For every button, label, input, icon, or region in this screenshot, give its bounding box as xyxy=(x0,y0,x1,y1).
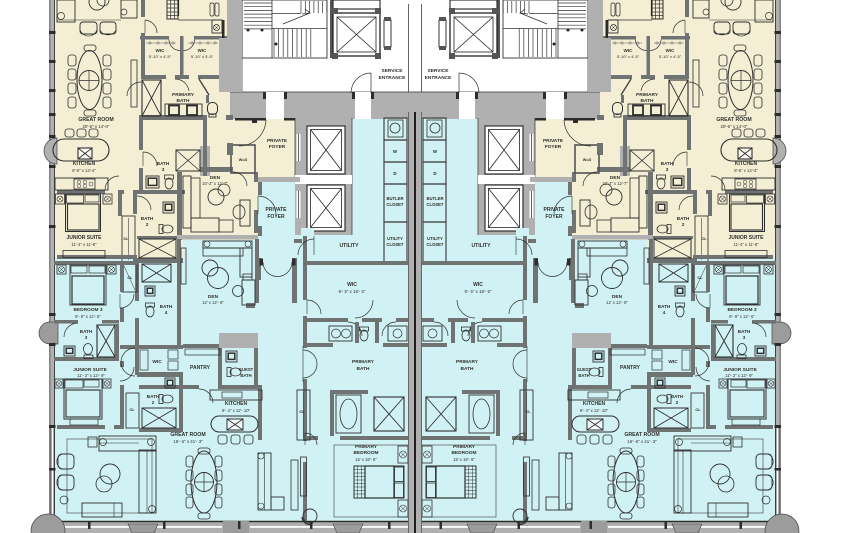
svg-text:UTILITY: UTILITY xyxy=(427,236,443,241)
svg-text:BATH: BATH xyxy=(661,161,674,166)
svg-text:SERVICE: SERVICE xyxy=(382,68,404,74)
svg-text:KITCHEN: KITCHEN xyxy=(735,161,758,167)
svg-text:CL: CL xyxy=(123,236,129,241)
svg-text:PRIMARY: PRIMARY xyxy=(172,92,195,98)
svg-text:BATH: BATH xyxy=(160,304,173,309)
svg-text:W=D: W=D xyxy=(583,158,592,162)
svg-text:ENTRANCE: ENTRANCE xyxy=(425,75,452,81)
svg-text:BATH: BATH xyxy=(578,373,589,378)
svg-text:GUEST: GUEST xyxy=(239,367,254,372)
svg-text:KITCHEN: KITCHEN xyxy=(583,401,606,407)
svg-text:BATH: BATH xyxy=(738,329,751,334)
svg-text:FOYER: FOYER xyxy=(545,144,562,150)
svg-text:CLOSET: CLOSET xyxy=(427,242,444,247)
svg-text:D: D xyxy=(393,171,396,176)
svg-text:PRIMARY: PRIMARY xyxy=(456,359,479,365)
svg-text:W=D: W=D xyxy=(239,158,248,162)
svg-text:GREAT ROOM: GREAT ROOM xyxy=(170,432,205,438)
svg-text:UTILITY: UTILITY xyxy=(472,243,492,249)
svg-text:BATH: BATH xyxy=(80,329,93,334)
svg-text:11'-4" x 11'-8": 11'-4" x 11'-8" xyxy=(733,242,759,247)
svg-text:3: 3 xyxy=(85,335,88,340)
svg-text:8'- 4" x 12'- 10": 8'- 4" x 12'- 10" xyxy=(580,408,609,413)
svg-text:BATH: BATH xyxy=(177,98,191,104)
svg-text:WIC: WIC xyxy=(668,359,678,365)
svg-text:BATH: BATH xyxy=(461,366,475,372)
svg-text:GREAT ROOM: GREAT ROOM xyxy=(78,117,113,123)
svg-text:12' x 12'- 9": 12' x 12'- 9" xyxy=(202,300,224,305)
svg-text:FOYER: FOYER xyxy=(545,214,563,220)
svg-text:4: 4 xyxy=(165,310,168,315)
svg-text:CL: CL xyxy=(129,407,135,412)
svg-text:KITCHEN: KITCHEN xyxy=(225,401,248,407)
svg-text:9'- 5" x 18'- 5": 9'- 5" x 18'- 5" xyxy=(338,289,365,294)
svg-text:CL: CL xyxy=(695,407,701,412)
svg-text:PRIVATE: PRIVATE xyxy=(543,138,564,144)
svg-text:JUNIOR SUITE: JUNIOR SUITE xyxy=(66,235,102,241)
svg-text:16'- 6" x 41'- 3": 16'- 6" x 41'- 3" xyxy=(173,439,203,444)
svg-text:WIC: WIC xyxy=(156,48,166,53)
svg-text:9'- 8" x 12'- 5": 9'- 8" x 12'- 5" xyxy=(75,314,101,319)
svg-text:CL: CL xyxy=(697,275,703,280)
svg-text:CL: CL xyxy=(299,409,305,414)
svg-text:PANTRY: PANTRY xyxy=(190,365,211,371)
svg-text:2: 2 xyxy=(676,400,679,405)
svg-text:BATH: BATH xyxy=(147,394,160,399)
svg-text:UTILITY: UTILITY xyxy=(340,243,360,249)
svg-text:4: 4 xyxy=(663,310,666,315)
svg-text:BEDROOM: BEDROOM xyxy=(451,450,476,456)
svg-text:BUTLER: BUTLER xyxy=(427,196,444,201)
svg-text:CL: CL xyxy=(701,236,707,241)
svg-text:WIC: WIC xyxy=(347,282,357,288)
svg-text:FOYER: FOYER xyxy=(269,144,286,150)
svg-text:BATH: BATH xyxy=(641,98,655,104)
svg-text:PRIMARY: PRIMARY xyxy=(453,444,476,450)
svg-text:GUEST: GUEST xyxy=(577,367,592,372)
svg-text:12' x 12'- 9": 12' x 12'- 9" xyxy=(606,300,628,305)
svg-text:5'-10" x 4'-5": 5'-10" x 4'-5" xyxy=(617,54,640,59)
svg-text:BEDROOM 3: BEDROOM 3 xyxy=(727,307,756,313)
svg-text:5'-10" x 4'-5": 5'-10" x 4'-5" xyxy=(659,54,682,59)
svg-text:BATH: BATH xyxy=(671,394,684,399)
svg-text:JUNIOR SUITE: JUNIOR SUITE xyxy=(728,235,764,241)
svg-text:8'- 4" x 12'- 10": 8'- 4" x 12'- 10" xyxy=(222,408,251,413)
svg-text:CLOSET: CLOSET xyxy=(427,202,444,207)
svg-text:9'- 8" x 12'- 5": 9'- 8" x 12'- 5" xyxy=(729,314,755,319)
svg-text:2: 2 xyxy=(146,222,149,227)
svg-text:WIC: WIC xyxy=(666,48,676,53)
svg-text:3: 3 xyxy=(162,167,165,172)
svg-text:CL: CL xyxy=(525,409,531,414)
svg-text:CL: CL xyxy=(127,275,133,280)
svg-text:2: 2 xyxy=(682,222,685,227)
svg-text:BEDROOM 3: BEDROOM 3 xyxy=(73,307,102,313)
svg-text:PRIVATE: PRIVATE xyxy=(544,207,566,213)
svg-text:PRIVATE: PRIVATE xyxy=(267,138,288,144)
svg-text:20'-6" x 14'-0": 20'-6" x 14'-0" xyxy=(720,124,747,129)
svg-text:BATH: BATH xyxy=(357,366,371,372)
svg-text:15' x 18'- 5": 15' x 18'- 5" xyxy=(355,457,377,462)
svg-text:PRIMARY: PRIMARY xyxy=(355,444,378,450)
svg-text:9'- 5" x 18'- 5": 9'- 5" x 18'- 5" xyxy=(464,289,491,294)
svg-text:WIC: WIC xyxy=(152,359,162,365)
svg-text:PRIVATE: PRIVATE xyxy=(266,207,288,213)
svg-text:BATH: BATH xyxy=(157,161,170,166)
svg-text:5'-10" x 4'-5": 5'-10" x 4'-5" xyxy=(149,54,172,59)
svg-text:15' x 18'- 5": 15' x 18'- 5" xyxy=(453,457,475,462)
svg-text:8'-6" x 13'-4": 8'-6" x 13'-4" xyxy=(734,168,758,173)
svg-text:GREAT ROOM: GREAT ROOM xyxy=(624,432,659,438)
svg-text:GREAT ROOM: GREAT ROOM xyxy=(716,117,751,123)
svg-text:20'-6" x 14'-0": 20'-6" x 14'-0" xyxy=(82,124,109,129)
svg-text:WIC: WIC xyxy=(198,48,208,53)
svg-text:WIC: WIC xyxy=(473,282,483,288)
svg-text:ENTRANCE: ENTRANCE xyxy=(379,75,406,81)
svg-text:2: 2 xyxy=(152,400,155,405)
svg-text:BATH: BATH xyxy=(677,216,690,221)
svg-text:FOYER: FOYER xyxy=(267,214,285,220)
svg-text:UTILITY: UTILITY xyxy=(387,236,403,241)
svg-text:PANTRY: PANTRY xyxy=(620,365,641,371)
svg-text:BATH: BATH xyxy=(240,373,251,378)
svg-text:BATH: BATH xyxy=(141,216,154,221)
svg-text:11'-4" x 11'-8": 11'-4" x 11'-8" xyxy=(71,242,97,247)
svg-text:PRIMARY: PRIMARY xyxy=(636,92,659,98)
svg-text:CLOSET: CLOSET xyxy=(387,242,404,247)
svg-text:PRIMARY: PRIMARY xyxy=(352,359,375,365)
svg-text:WIC: WIC xyxy=(624,48,634,53)
svg-text:11'- 2" x 12'- 9": 11'- 2" x 12'- 9" xyxy=(725,373,753,378)
svg-text:10'-2" x 12'-7": 10'-2" x 12'-7" xyxy=(202,181,228,186)
svg-text:BUTLER: BUTLER xyxy=(387,196,404,201)
svg-text:SERVICE: SERVICE xyxy=(428,68,450,74)
svg-text:D: D xyxy=(433,171,436,176)
svg-text:BEDROOM: BEDROOM xyxy=(353,450,378,456)
svg-text:16'- 6" x 41'- 3": 16'- 6" x 41'- 3" xyxy=(627,439,657,444)
svg-text:CLOSET: CLOSET xyxy=(387,202,404,207)
svg-text:10'-2" x 12'-7": 10'-2" x 12'-7" xyxy=(602,181,628,186)
svg-text:3: 3 xyxy=(743,335,746,340)
svg-text:3: 3 xyxy=(666,167,669,172)
svg-text:11'- 2" x 12'- 9": 11'- 2" x 12'- 9" xyxy=(77,373,105,378)
svg-text:KITCHEN: KITCHEN xyxy=(73,161,96,167)
svg-text:8'-6" x 13'-4": 8'-6" x 13'-4" xyxy=(72,168,96,173)
svg-text:5'-10" x 4'-5": 5'-10" x 4'-5" xyxy=(191,54,214,59)
svg-text:BATH: BATH xyxy=(658,304,671,309)
